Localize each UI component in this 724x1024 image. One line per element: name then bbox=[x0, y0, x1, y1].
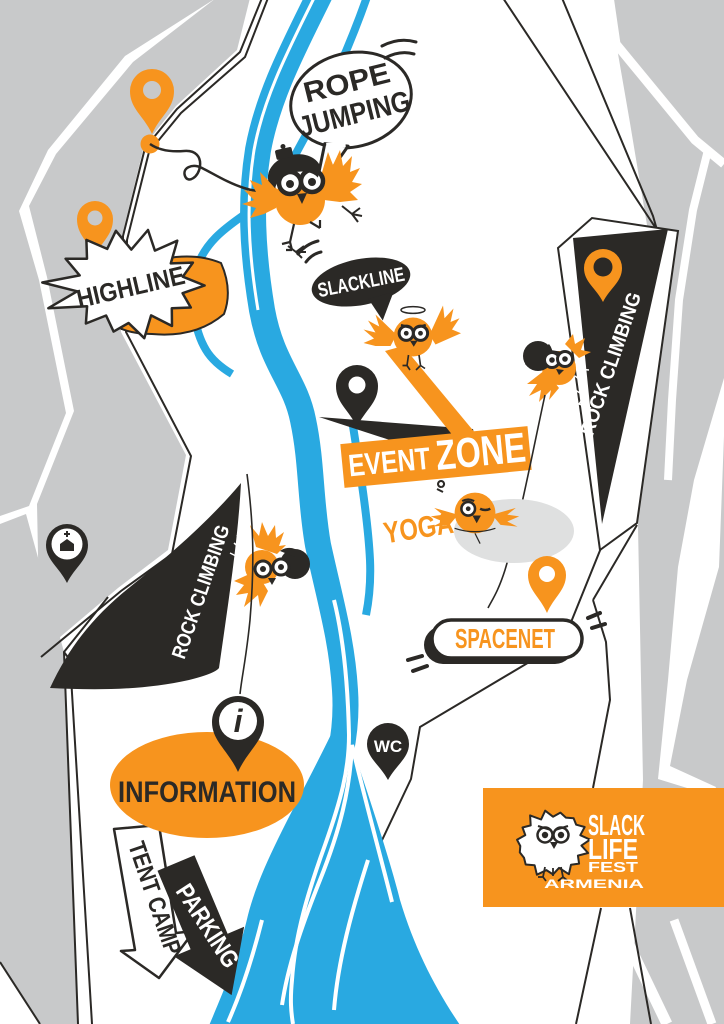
svg-text:ARMENIA: ARMENIA bbox=[544, 877, 645, 891]
svg-text:INFORMATION: INFORMATION bbox=[118, 776, 296, 809]
svg-text:i: i bbox=[234, 703, 244, 739]
svg-text:ZONE: ZONE bbox=[434, 423, 528, 478]
svg-text:SPACENET: SPACENET bbox=[455, 623, 555, 654]
svg-text:FEST: FEST bbox=[588, 859, 638, 876]
svg-text:WC: WC bbox=[374, 737, 402, 756]
